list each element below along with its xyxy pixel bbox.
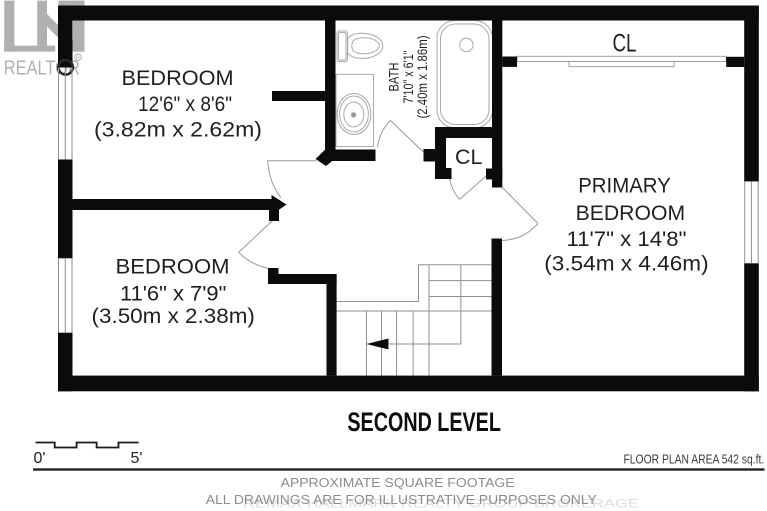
svg-text:(3.82m x 2.62m): (3.82m x 2.62m) [94, 118, 262, 142]
svg-text:5': 5' [131, 450, 143, 467]
svg-text:11'7" x 14'8": 11'7" x 14'8" [567, 227, 687, 251]
svg-text:CL: CL [613, 30, 637, 58]
svg-text:CL: CL [455, 145, 482, 169]
svg-text:APPROXIMATE SQUARE FOOTAGE: APPROXIMATE SQUARE FOOTAGE [281, 476, 515, 490]
svg-text:BEDROOM: BEDROOM [576, 201, 686, 225]
svg-text:0': 0' [34, 450, 46, 467]
svg-text:BEDROOM: BEDROOM [122, 66, 234, 90]
svg-text:R: R [76, 56, 80, 62]
svg-text:(2.40m x 1.86m): (2.40m x 1.86m) [415, 36, 430, 119]
svg-text:(3.54m x 4.46m): (3.54m x 4.46m) [544, 252, 708, 276]
svg-text:ALL DRAWINGS ARE FOR ILLUSTRAT: ALL DRAWINGS ARE FOR ILLUSTRATIVE PURPOS… [206, 493, 598, 507]
svg-text:FLOOR PLAN AREA 542 sq.ft.: FLOOR PLAN AREA 542 sq.ft. [624, 452, 765, 467]
svg-text:12'6" x 8'6": 12'6" x 8'6" [138, 92, 232, 116]
svg-text:BATH: BATH [387, 63, 402, 92]
svg-text:PRIMARY: PRIMARY [578, 173, 671, 197]
svg-text:SECOND LEVEL: SECOND LEVEL [347, 407, 501, 437]
svg-text:11'6" x 7'9": 11'6" x 7'9" [120, 282, 226, 306]
svg-text:(3.50m x 2.38m): (3.50m x 2.38m) [92, 304, 255, 328]
svg-text:7'10" x 6'1": 7'10" x 6'1" [401, 50, 416, 103]
svg-text:BEDROOM: BEDROOM [116, 255, 230, 279]
